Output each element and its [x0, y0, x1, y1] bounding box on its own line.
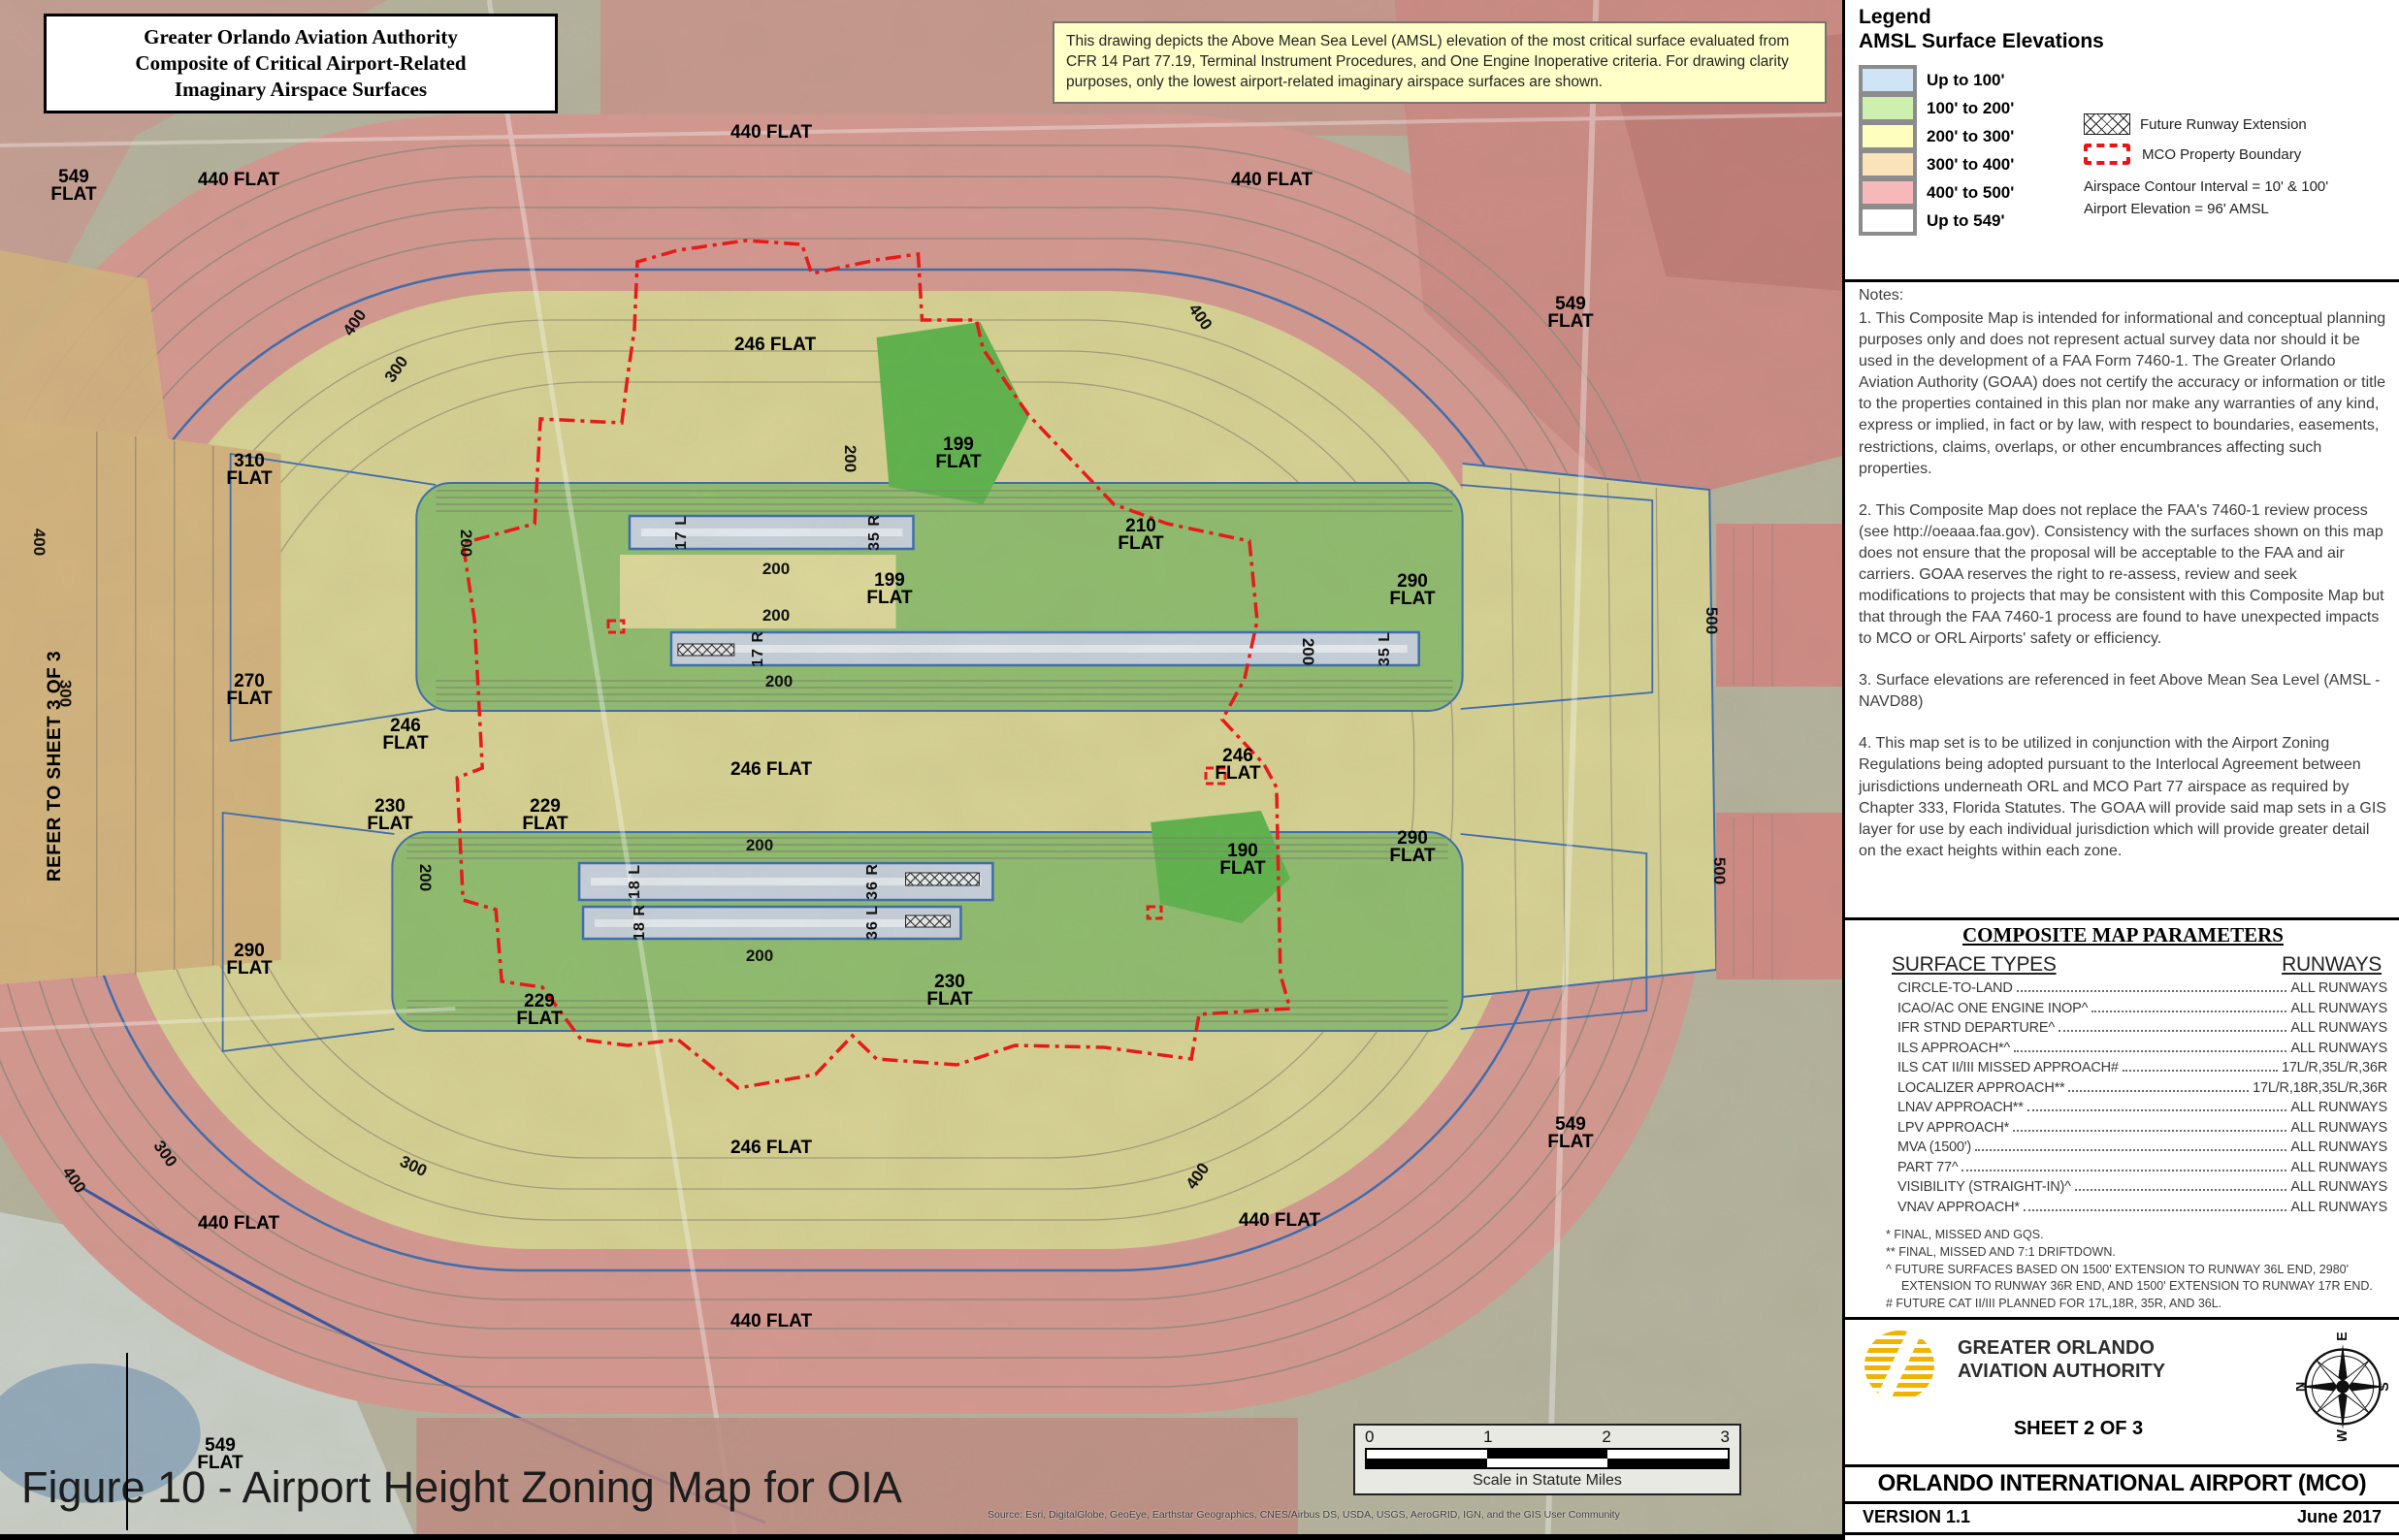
runways-value: ALL RUNWAYS — [2290, 980, 2387, 996]
parameter-row: CIRCLE-TO-LANDALL RUNWAYS — [1897, 980, 2387, 1001]
legend-item: 200' to 300' — [1859, 121, 2084, 151]
legend-swatch — [1859, 121, 1917, 151]
parameters-footnotes: * FINAL, MISSED AND GQS.** FINAL, MISSED… — [1853, 1219, 2393, 1311]
leader-dots — [1975, 1149, 2286, 1151]
surface-types-header: SURFACE TYPES — [1892, 953, 2057, 977]
note-item: 4. This map set is to be utilized in con… — [1859, 733, 2389, 861]
panel-divider — [1845, 279, 2399, 282]
leader-dots — [2123, 1070, 2278, 1072]
parameter-row: VNAV APPROACH*ALL RUNWAYS — [1897, 1200, 2387, 1220]
airport-elevation-note: Airport Elevation = 96' AMSL — [2084, 199, 2387, 221]
scale-ticks: 0123 — [1365, 1428, 1730, 1448]
scale-tick: 3 — [1721, 1428, 1730, 1447]
mco-boundary-swatch — [2084, 144, 2130, 165]
note-item: 1. This Composite Map is intended for in… — [1859, 308, 2389, 480]
leader-dots — [2059, 1030, 2286, 1032]
parameter-footnote: # FUTURE CAT II/III PLANNED FOR 17L,18R,… — [1886, 1296, 2389, 1312]
runways-value: ALL RUNWAYS — [2290, 1160, 2387, 1175]
info-panel: Legend AMSL Surface Elevations Up to 100… — [1845, 0, 2399, 1540]
runways-value: ALL RUNWAYS — [2290, 1100, 2387, 1115]
parameter-footnote: ^ FUTURE SURFACES BASED ON 1500' EXTENSI… — [1886, 1262, 2389, 1295]
leader-dots — [2075, 1189, 2287, 1191]
legend-item-label: 300' to 400' — [1927, 155, 2014, 175]
surface-type: MVA (1500') — [1897, 1139, 1971, 1155]
surface-type: IFR STND DEPARTURE^ — [1897, 1020, 2055, 1036]
notes-list: 1. This Composite Map is intended for in… — [1859, 308, 2389, 862]
legend-swatch — [1859, 177, 1917, 208]
aerial-texture — [0, 0, 1842, 1540]
parameter-row: ILS APPROACH*^ALL RUNWAYS — [1897, 1041, 2387, 1061]
legend-item: 400' to 500' — [1859, 177, 2084, 208]
leader-dots — [1961, 1170, 2286, 1171]
parameter-row: IFR STND DEPARTURE^ALL RUNWAYS — [1897, 1020, 2387, 1041]
runways-value: ALL RUNWAYS — [2290, 1120, 2387, 1136]
parameter-footnote: ** FINAL, MISSED AND 7:1 DRIFTDOWN. — [1886, 1244, 2389, 1261]
legend-item-label: Up to 100' — [1927, 71, 2005, 90]
legend-mco-property-boundary: MCO Property Boundary — [2084, 144, 2387, 165]
legend-item-label: 100' to 200' — [1927, 99, 2014, 118]
map-bottom-border — [0, 1534, 1845, 1540]
leader-dots — [2091, 1011, 2286, 1012]
map-canvas: 549 FLAT440 FLAT440 FLAT440 FLAT549 FLAT… — [0, 0, 1845, 1540]
title-block-rule — [1845, 1532, 2399, 1535]
parameter-row: LNAV APPROACH**ALL RUNWAYS — [1897, 1100, 2387, 1120]
parameter-row: ILS CAT II/III MISSED APPROACH#17L/R,35L… — [1897, 1060, 2387, 1080]
legend-elevation-items: Up to 100'100' to 200'200' to 300'300' t… — [1859, 65, 2084, 234]
runways-value: ALL RUNWAYS — [2290, 1200, 2387, 1215]
parameters-table: CIRCLE-TO-LANDALL RUNWAYSICAO/AC ONE ENG… — [1853, 979, 2393, 1219]
parameter-row: LPV APPROACH*ALL RUNWAYS — [1897, 1120, 2387, 1140]
leader-dots — [2013, 1130, 2286, 1132]
legend-item: Up to 100' — [1859, 65, 2084, 95]
parameter-row: PART 77^ALL RUNWAYS — [1897, 1160, 2387, 1180]
organization-name: GREATER ORLANDO AVIATION AUTHORITY — [1958, 1336, 2296, 1383]
parameter-row: VISIBILITY (STRAIGHT-IN)^ALL RUNWAYS — [1897, 1179, 2387, 1200]
goaa-logo — [1864, 1331, 1948, 1402]
contour-interval-note: Airspace Contour Interval = 10' & 100' — [2084, 176, 2387, 199]
runways-value: ALL RUNWAYS — [2290, 1139, 2387, 1155]
surface-type: LOCALIZER APPROACH** — [1897, 1080, 2064, 1096]
refer-to-sheet-label: REFER TO SHEET 3 OF 3 — [45, 651, 66, 882]
compass-left-letter: N — [2296, 1382, 2309, 1392]
surface-type: LNAV APPROACH** — [1897, 1100, 2024, 1115]
drawing-note-box: This drawing depicts the Above Mean Sea … — [1053, 21, 1827, 104]
legend-swatch — [1859, 149, 1917, 179]
panel-divider — [1845, 917, 2399, 920]
parameter-row: MVA (1500')ALL RUNWAYS — [1897, 1139, 2387, 1160]
surface-type: VISIBILITY (STRAIGHT-IN)^ — [1897, 1179, 2071, 1195]
scale-tick: 2 — [1602, 1428, 1610, 1447]
surface-type: VNAV APPROACH* — [1897, 1200, 2020, 1215]
map-title-box: Greater Orlando Aviation Authority Compo… — [44, 14, 558, 113]
parameter-row: ICAO/AC ONE ENGINE INOP^ALL RUNWAYS — [1897, 1001, 2387, 1021]
airspace-surfaces-map — [0, 0, 1842, 1540]
scale-tick: 0 — [1365, 1428, 1374, 1447]
mco-boundary-label: MCO Property Boundary — [2142, 146, 2301, 163]
legend-item: Up to 549' — [1859, 206, 2084, 236]
map-title-line: Greater Orlando Aviation Authority — [52, 24, 549, 50]
runways-header: RUNWAYS — [2282, 953, 2382, 977]
notes-heading: Notes: — [1859, 285, 2389, 306]
imagery-attribution: Source: Esri, DigitalGlobe, GeoEye, Eart… — [988, 1509, 1620, 1521]
legend-item-label: 200' to 300' — [1927, 127, 2014, 146]
parameter-footnote: * FINAL, MISSED AND GQS. — [1886, 1227, 2389, 1243]
legend-swatch — [1859, 65, 1917, 95]
goaa-globe-icon — [1864, 1331, 1934, 1400]
legend-item: 100' to 200' — [1859, 93, 2084, 123]
note-item: 3. Surface elevations are referenced in … — [1859, 670, 2389, 713]
runways-value: 17L/R,18R,35L/R,36R — [2253, 1080, 2387, 1096]
date-label: June 2017 — [2297, 1507, 2382, 1527]
runways-value: ALL RUNWAYS — [2290, 1001, 2387, 1016]
legend-item: 300' to 400' — [1859, 149, 2084, 179]
leader-dots — [2024, 1209, 2287, 1211]
surface-type: ILS APPROACH*^ — [1897, 1041, 2010, 1056]
scale-tick: 1 — [1483, 1428, 1492, 1447]
airport-height-zoning-map-sheet: 549 FLAT440 FLAT440 FLAT440 FLAT549 FLAT… — [0, 0, 2399, 1540]
parameters-title: COMPOSITE MAP PARAMETERS — [1853, 923, 2393, 947]
runways-value: 17L/R,35L/R,36R — [2282, 1060, 2387, 1075]
compass-bottom-letter: W — [2335, 1429, 2350, 1441]
future-runway-extension-swatch — [2084, 113, 2130, 135]
org-name-line: GREATER ORLANDO — [1958, 1336, 2296, 1360]
surface-type: CIRCLE-TO-LAND — [1897, 980, 2013, 996]
map-title-line: Composite of Critical Airport-Related — [52, 50, 549, 77]
version-label: VERSION 1.1 — [1863, 1507, 1970, 1527]
legend-swatch — [1859, 93, 1917, 123]
figure-caption: Figure 10 - Airport Height Zoning Map fo… — [21, 1462, 902, 1513]
leader-dots — [2027, 1109, 2287, 1111]
notes-section: Notes: 1. This Composite Map is intended… — [1859, 285, 2389, 882]
title-block-rule — [1845, 1501, 2399, 1504]
runways-value: ALL RUNWAYS — [2290, 1179, 2387, 1195]
legend: Legend AMSL Surface Elevations Up to 100… — [1859, 6, 2387, 234]
leader-dots — [2068, 1090, 2249, 1092]
leader-dots — [2014, 1050, 2286, 1052]
title-block-rule — [1845, 1464, 2399, 1467]
surface-type: LPV APPROACH* — [1897, 1120, 2009, 1136]
scale-bar-label: Scale in Statute Miles — [1365, 1469, 1730, 1490]
note-item: 2. This Composite Map does not replace t… — [1859, 500, 2389, 651]
legend-future-runway-extension: Future Runway Extension — [2084, 113, 2387, 135]
runways-value: ALL RUNWAYS — [2290, 1041, 2387, 1056]
runways-value: ALL RUNWAYS — [2290, 1020, 2387, 1036]
surface-type: ICAO/AC ONE ENGINE INOP^ — [1897, 1001, 2088, 1016]
legend-item-label: Up to 549' — [1927, 211, 2005, 231]
compass-right-letter: S — [2377, 1382, 2389, 1392]
sheet-neatline — [126, 1353, 128, 1530]
compass-top-letter: E — [2335, 1331, 2350, 1341]
scale-bar: 0123 Scale in Statute Miles — [1353, 1424, 1741, 1495]
composite-map-parameters: COMPOSITE MAP PARAMETERS SURFACE TYPES R… — [1853, 923, 2393, 1312]
legend-swatch — [1859, 206, 1917, 236]
org-name-line: AVIATION AUTHORITY — [1958, 1360, 2296, 1383]
map-title-line: Imaginary Airspace Surfaces — [52, 77, 549, 103]
title-block: GREATER ORLANDO AVIATION AUTHORITY — [1845, 1317, 2399, 1540]
leader-dots — [2017, 990, 2287, 992]
legend-item-label: 400' to 500' — [1927, 183, 2014, 203]
surface-type: ILS CAT II/III MISSED APPROACH# — [1897, 1060, 2119, 1075]
future-runway-extension-label: Future Runway Extension — [2140, 116, 2307, 133]
parameter-row: LOCALIZER APPROACH**17L/R,18R,35L/R,36R — [1897, 1080, 2387, 1101]
legend-subtitle: AMSL Surface Elevations — [1859, 30, 2387, 53]
scale-bar-graphic — [1365, 1448, 1730, 1469]
sheet-number: SHEET 2 OF 3 — [1845, 1418, 2312, 1440]
airport-name: ORLANDO INTERNATIONAL AIRPORT (MCO) — [1845, 1470, 2399, 1497]
surface-type: PART 77^ — [1897, 1160, 1958, 1175]
legend-title: Legend — [1859, 6, 2387, 29]
